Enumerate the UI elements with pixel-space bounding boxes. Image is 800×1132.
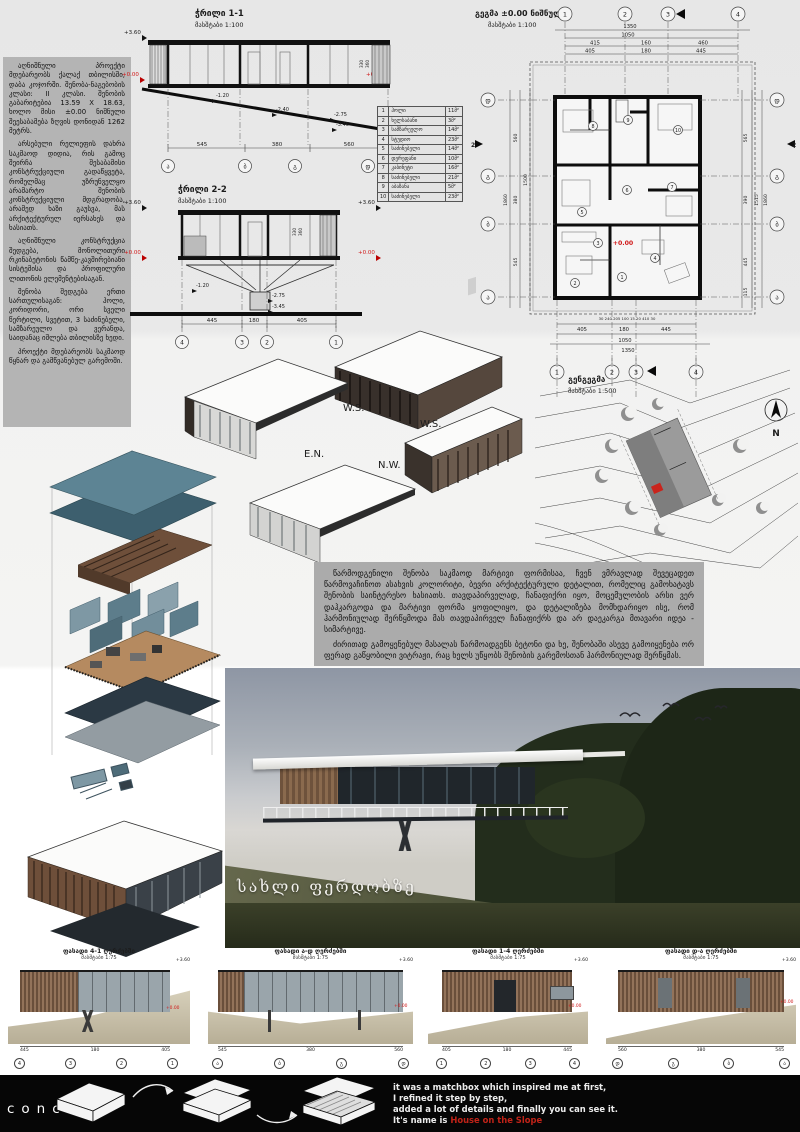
axis-bubble: ა <box>779 1058 790 1069</box>
svg-text:E.N.: E.N. <box>304 449 324 460</box>
level-label: +3.60 <box>782 958 796 963</box>
description-paragraph: ძირითად გამოყენებულ მასალას წარმოადგენს … <box>324 639 694 661</box>
description-paragraph: აღნიშნული პროექტი მდებარეობს ქალაქ თბილი… <box>9 62 125 136</box>
svg-text:4: 4 <box>653 256 656 262</box>
svg-text:180: 180 <box>249 318 260 324</box>
svg-text:445: 445 <box>207 318 218 324</box>
photo-caption: სახლი ფერდობზე <box>237 878 416 896</box>
elevation-title: ფასადი ა-დ ღერძებში <box>208 948 413 955</box>
elevation-4-1: ფასადი 4-1 ღერძებში მასშტაბი 1:75 +3.60 … <box>8 948 190 1074</box>
svg-text:330: 330 <box>292 228 297 236</box>
exploded-base-plates <box>65 677 220 763</box>
svg-text:380: 380 <box>513 196 519 205</box>
svg-text:460: 460 <box>698 41 708 47</box>
statement-line: It's name is House on the Slope <box>393 1115 623 1126</box>
project-description-panel: აღნიშნული პროექტი მდებარეობს ქალაქ თბილი… <box>3 57 131 427</box>
house-wood-facade <box>280 767 338 804</box>
svg-text:405: 405 <box>577 327 587 333</box>
table-row: 2ხელსაბანი3მ² <box>378 116 463 126</box>
site-plan-title: გენგეგმა <box>568 375 606 384</box>
section-cut-marker <box>676 9 685 19</box>
building-facade <box>218 970 403 1012</box>
dim-label: 180 <box>503 1048 512 1053</box>
svg-text:4: 4 <box>736 11 740 19</box>
concept-strip: concept <box>0 1075 800 1132</box>
svg-text:1050: 1050 <box>618 338 631 344</box>
door <box>494 980 516 1012</box>
svg-text:405: 405 <box>585 49 595 55</box>
axis-bubble: დ <box>612 1058 623 1069</box>
svg-text:160: 160 <box>641 41 651 47</box>
axis-bubble: 1 <box>167 1058 178 1069</box>
building-facade <box>442 970 572 1012</box>
dim-label: 545 <box>218 1048 227 1053</box>
svg-text:W.S.: W.S. <box>420 419 441 430</box>
svg-text:2: 2 <box>792 142 796 149</box>
svg-text:405: 405 <box>297 318 308 324</box>
svg-text:დ: დ <box>774 97 779 105</box>
floor-plan-scale: მასშტაბი 1:100 <box>488 21 537 29</box>
plan-body: +0.00 <box>530 62 755 314</box>
svg-text:გ: გ <box>486 173 490 181</box>
elevation-a-d: ფასადი ა-დ ღერძებში მასშტაბი 1:75 +3.60 … <box>208 948 413 1074</box>
section-2-2-title: ჭრილი 2-2 <box>178 184 227 195</box>
table-row: 3სამზარეულო14მ² <box>378 126 463 136</box>
elevation-scale: მასშტაბი 1:75 <box>208 955 413 962</box>
section-1-1-drawing: ჭრილი 1-1 მასშტაბი 1:100 +3.60 +0.00 +0.… <box>120 0 400 174</box>
room-schedule-table: 1ჰოლი11მ² 2ხელსაბანი3მ² 3სამზარეულო14მ² … <box>377 106 463 202</box>
support-column <box>268 1010 271 1032</box>
svg-text:ა: ა <box>775 294 778 302</box>
section-1-1-building: 330 360 <box>148 40 390 88</box>
section-cut-marker <box>475 140 483 148</box>
level-label: +3.60 <box>176 958 190 963</box>
birds-icon <box>615 698 735 743</box>
svg-text:W.S.: W.S. <box>343 403 364 414</box>
svg-text:115: 115 <box>743 288 749 297</box>
table-row: 4სტუდიო23მ² <box>378 135 463 145</box>
description-paragraph: შენობა შედგება ერთი სართულისაგან: ჰოლი, … <box>9 288 125 344</box>
furniture-vignette <box>71 763 133 799</box>
statement-line: I refined it step by step, <box>393 1093 623 1104</box>
axis-bubble: გ <box>336 1058 347 1069</box>
plan-grid-top: 1 2 3 4 1350 1050 415 160 460 405 180 44… <box>555 7 750 97</box>
svg-text:N.W.: N.W. <box>378 460 401 471</box>
svg-text:+0.00: +0.00 <box>122 72 139 78</box>
table-row: 6დერეფანი10მ² <box>378 154 463 164</box>
support-trestle <box>63 1010 113 1032</box>
window <box>550 986 574 1000</box>
svg-text:-2.75: -2.75 <box>272 293 285 299</box>
table-row: 10საძინებელი23მ² <box>378 192 463 202</box>
section-1-1-scale: მასშტაბი 1:100 <box>195 21 244 29</box>
svg-text:1: 1 <box>563 11 567 19</box>
presentation-board: აღნიშნული პროექტი მდებარეობს ქალაქ თბილი… <box>0 0 800 1132</box>
level-label: +3.60 <box>399 958 413 963</box>
axis-bubble: 3 <box>525 1058 536 1069</box>
exploded-roof-plates <box>50 451 216 541</box>
svg-text:360: 360 <box>365 60 370 68</box>
dim-label: 180 <box>91 1048 100 1053</box>
elevation-title: ფასადი 1-4 ღერძებში <box>428 948 588 955</box>
svg-text:9: 9 <box>626 118 629 124</box>
svg-text:545: 545 <box>197 142 208 148</box>
axis-bubble: ბ <box>274 1058 285 1069</box>
elevation-1-4: ფასადი 1-4 ღერძებში მასშტაბი 1:75 +3.60 … <box>428 948 588 1074</box>
matchbox-step-2 <box>183 1079 251 1123</box>
axis-bubble: ა <box>212 1058 223 1069</box>
svg-text:330: 330 <box>359 60 364 68</box>
svg-text:N: N <box>772 429 780 439</box>
svg-text:გ: გ <box>775 173 779 181</box>
svg-text:445: 445 <box>743 258 749 267</box>
svg-text:+0.00: +0.00 <box>358 250 375 256</box>
foreground-bushes <box>225 903 800 948</box>
zero-level-label: +0.00 <box>166 1006 179 1011</box>
svg-text:-1.20: -1.20 <box>216 93 229 99</box>
svg-text:-3.45: -3.45 <box>272 304 285 310</box>
section-2-2-scale: მასშტაბი 1:100 <box>178 197 227 205</box>
elevation-d-a: ფასადი დ-ა ღერძებში მასშტაბი 1:75 +3.60 … <box>606 948 796 1074</box>
svg-text:565: 565 <box>743 134 749 143</box>
svg-text:1500: 1500 <box>523 174 529 186</box>
svg-text:445: 445 <box>661 327 671 333</box>
svg-text:1: 1 <box>620 275 623 281</box>
site-plan-scale: მასშტაბი 1:500 <box>568 387 617 395</box>
axon-house-complete <box>28 821 222 957</box>
svg-text:8: 8 <box>591 124 594 130</box>
axis-bubble: დ <box>398 1058 409 1069</box>
house-support <box>375 821 435 851</box>
svg-text:1860: 1860 <box>763 194 769 206</box>
svg-text:5: 5 <box>580 210 583 216</box>
axis-bubble: 4 <box>569 1058 580 1069</box>
plan-level-label: +0.00 <box>613 240 634 247</box>
svg-text:+0.00: +0.00 <box>124 250 141 256</box>
svg-text:1350: 1350 <box>621 348 634 354</box>
floor-plan-title: გეგმა ±0.00 ნიშნულზე <box>475 9 571 18</box>
svg-text:2: 2 <box>471 142 475 149</box>
svg-text:ა: ა <box>486 294 489 302</box>
dim-label: 445 <box>20 1048 29 1053</box>
svg-text:445: 445 <box>696 49 706 55</box>
table-row: 5საძინებელი14მ² <box>378 145 463 155</box>
dim-label: 380 <box>697 1048 706 1053</box>
svg-text:360: 360 <box>298 228 303 236</box>
dim-label: 560 <box>394 1048 403 1053</box>
dim-label: 405 <box>161 1048 170 1053</box>
concept-description-panel: წარმოდგენილი შენობა საკმაოდ მარტივი ფორმ… <box>314 562 704 666</box>
section-2-2-building: 330 360 <box>178 210 340 260</box>
table-row: 7კაბინეტი16მ² <box>378 164 463 174</box>
svg-text:1050: 1050 <box>621 33 634 39</box>
dim-label: 380 <box>306 1048 315 1053</box>
svg-text:2: 2 <box>573 281 576 287</box>
svg-text:-1.20: -1.20 <box>196 283 209 289</box>
section-2-2-levels: +3.60 +3.60 +0.00 +0.00 <box>124 200 381 261</box>
concept-statement: it was a matchbox which inspired me at f… <box>393 1082 623 1126</box>
zero-level-label: +0.00 <box>568 1004 581 1009</box>
axis-bubble: ბ <box>723 1058 734 1069</box>
matchbox-step-3 <box>303 1077 375 1125</box>
level-label: +3.60 <box>574 958 588 963</box>
section-1-1-dimensions: 545 380 560 <box>168 142 388 152</box>
zero-level-label: +0.00 <box>394 1004 407 1009</box>
dim-label: 445 <box>563 1048 572 1053</box>
building-facade <box>618 970 784 1012</box>
window <box>736 978 750 1008</box>
axon-house-sw <box>250 465 415 563</box>
svg-text:-3.45: -3.45 <box>336 122 349 128</box>
table-row: 9აბაზანა5მ² <box>378 183 463 193</box>
svg-text:10: 10 <box>675 128 681 134</box>
description-paragraph: აღნიშნული კონსტრუქცია შედგება, მონოლითურ… <box>9 237 125 283</box>
axis-bubble: გ <box>668 1058 679 1069</box>
window <box>658 978 672 1008</box>
svg-text:+3.60: +3.60 <box>358 200 375 206</box>
axis-bubble: 4 <box>14 1058 25 1069</box>
svg-text:1860: 1860 <box>503 194 509 206</box>
svg-text:-2.40: -2.40 <box>276 107 289 113</box>
svg-text:380: 380 <box>272 142 283 148</box>
svg-text:6: 6 <box>625 188 628 194</box>
svg-text:+3.60: +3.60 <box>124 200 141 206</box>
section-1-1-title: ჭრილი 1-1 <box>195 8 244 19</box>
dim-label: 405 <box>442 1048 451 1053</box>
svg-text:3: 3 <box>596 241 599 247</box>
dim-label: 545 <box>775 1048 784 1053</box>
exploded-wall-band <box>78 529 212 595</box>
dim-label: 560 <box>618 1048 627 1053</box>
statement-line: it was a matchbox which inspired me at f… <box>393 1082 623 1093</box>
svg-text:2: 2 <box>623 11 627 19</box>
elevation-title: ფასადი 4-1 ღერძებში <box>8 948 190 955</box>
svg-text:1515: 1515 <box>754 194 760 206</box>
svg-text:1350: 1350 <box>623 24 636 30</box>
elevation-scale: მასშტაბი 1:75 <box>8 955 190 962</box>
matchbox-step-1 <box>57 1083 125 1122</box>
plan-grid-left: დ გ ბ ა 560 380 545 1860 1500 2 <box>471 90 555 308</box>
description-paragraph: პროექტი მდებარეობს საკმაოდ წყნარ და გამწ… <box>9 348 125 367</box>
concept-diagram <box>45 1075 390 1132</box>
plan-grid-right: დ გ ბ ა 565 390 445 115 1515 1860 2 <box>700 90 796 308</box>
elevation-scale: მასშტაბი 1:75 <box>428 955 588 962</box>
axis-bubble: 2 <box>116 1058 127 1069</box>
svg-text:180: 180 <box>641 49 651 55</box>
section-2-2-support: -1.20 -2.75 -3.45 <box>130 260 362 332</box>
svg-text:დ: დ <box>485 97 490 105</box>
svg-text:180: 180 <box>619 327 629 333</box>
svg-text:-2.75: -2.75 <box>334 112 347 118</box>
site-plan-drawing: გენგეგმა მასშტაბი 1:500 N <box>540 358 800 570</box>
exploded-axonometric <box>20 425 240 960</box>
svg-text:3: 3 <box>666 11 670 19</box>
svg-text:415: 415 <box>590 41 600 47</box>
project-name-highlight: House on the Slope <box>450 1115 542 1125</box>
north-arrow-icon: N <box>765 399 787 439</box>
svg-text:545: 545 <box>513 258 519 267</box>
building-facade <box>20 970 170 1012</box>
table-row: 8საძინებელი21მ² <box>378 173 463 183</box>
elevation-title: ფასადი დ-ა ღერძებში <box>606 948 796 955</box>
description-paragraph: წარმოდგენილი შენობა საკმაოდ მარტივი ფორმ… <box>324 568 694 635</box>
svg-text:7: 7 <box>670 185 673 191</box>
render-photo: სახლი ფერდობზე <box>225 668 800 948</box>
svg-text:390: 390 <box>743 196 749 205</box>
svg-text:+3.60: +3.60 <box>124 30 141 36</box>
elevation-scale: მასშტაბი 1:75 <box>606 955 796 962</box>
svg-text:30 240 205 100 15 20 410: 30 240 205 100 15 20 410 30 <box>599 316 656 321</box>
svg-text:560: 560 <box>513 134 519 143</box>
support-column <box>358 1010 361 1030</box>
table-row: 1ჰოლი11მ² <box>378 107 463 117</box>
svg-text:560: 560 <box>344 142 355 148</box>
description-paragraph: არსებული რელიეფის დახრა საკმაოდ დიდია, რ… <box>9 140 125 233</box>
axis-bubble: 2 <box>480 1058 491 1069</box>
axis-bubble: 1 <box>436 1058 447 1069</box>
zero-level-label: +0.00 <box>780 1000 793 1005</box>
axis-bubble: 3 <box>65 1058 76 1069</box>
section-1-1-ground: -1.20 -2.40 -2.75 -3.45 <box>142 89 392 145</box>
statement-line: added a lot of details and finally you c… <box>393 1104 623 1115</box>
